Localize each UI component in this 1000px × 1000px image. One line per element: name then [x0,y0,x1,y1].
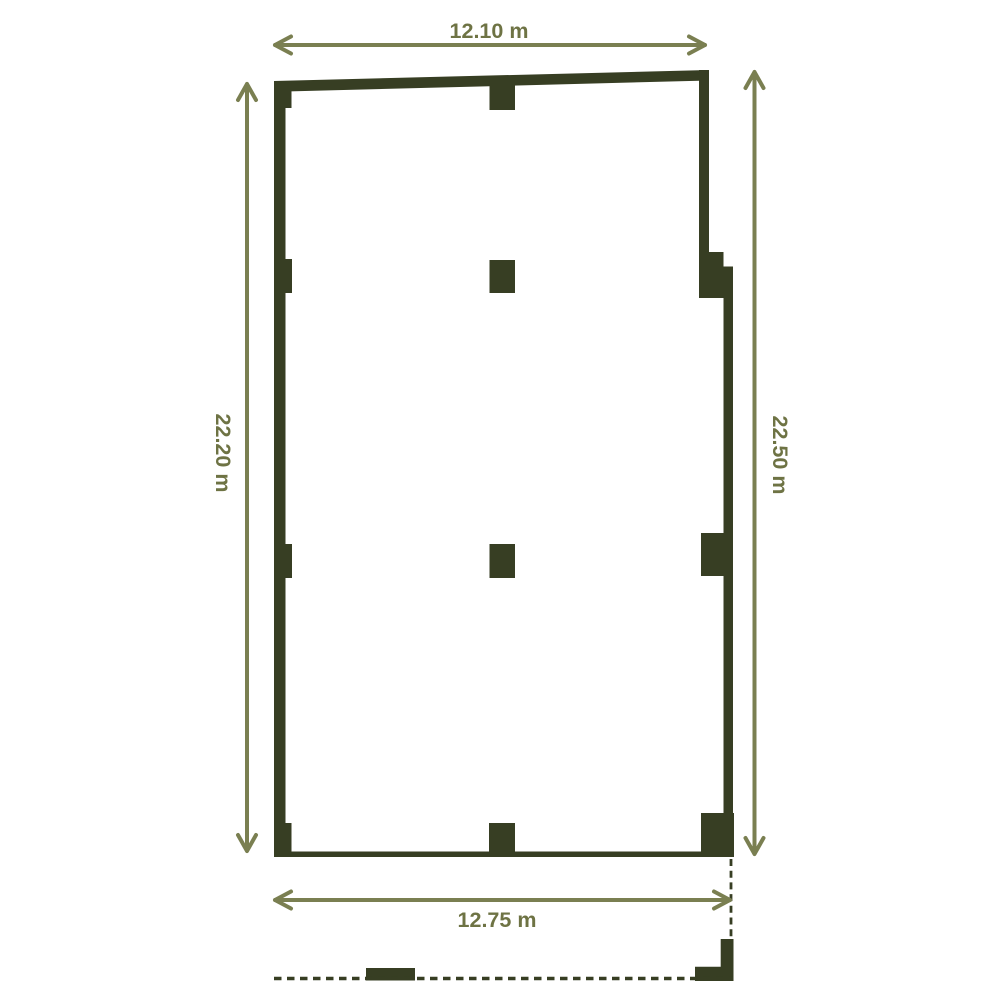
column-bottom-middle [489,823,515,854]
dimension-label-right: 22.50 m [768,416,792,495]
column-bottom-right [701,813,734,857]
dimension-label-left: 22.20 m [211,414,235,493]
column-row3-left [274,544,292,578]
floor-plan-canvas: 12.10 m 22.20 m 22.50 m 12.75 m [0,0,1000,1000]
column-bottom-left [274,823,292,853]
dimension-arrow-left [238,84,256,851]
column-row3-right [701,533,733,576]
building-structure [274,70,734,981]
wall-left [274,81,286,857]
dimension-lines [238,37,764,909]
dimension-arrow-bottom [275,892,730,909]
floor-plan-drawing: 12.10 m 22.20 m 22.50 m 12.75 m [0,0,1000,1000]
column-row2-left [274,259,292,293]
column-top-left [274,82,292,108]
site-corner-block [695,939,734,981]
column-top-middle [490,76,516,110]
column-row2-middle [490,260,516,293]
dimension-arrow-right [746,72,764,854]
column-row3-middle [490,544,516,578]
dimension-label-top: 12.10 m [450,19,529,43]
dimension-label-bottom: 12.75 m [458,908,537,932]
